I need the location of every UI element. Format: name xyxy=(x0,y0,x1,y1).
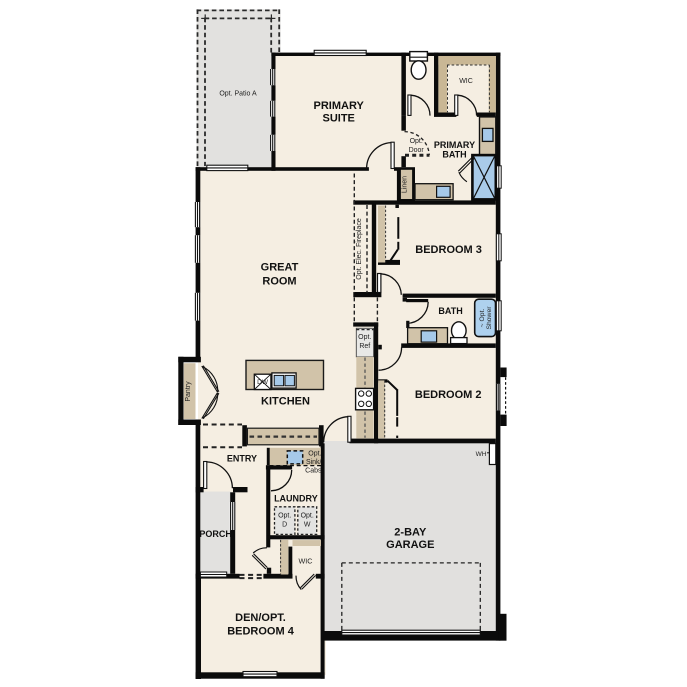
svg-text:2-BAY: 2-BAY xyxy=(394,526,427,538)
svg-text:Sink/: Sink/ xyxy=(306,459,322,466)
svg-text:Opt.: Opt. xyxy=(358,334,371,341)
svg-text:Opt. Patio A: Opt. Patio A xyxy=(219,91,257,98)
svg-text:PRIMARY: PRIMARY xyxy=(434,140,475,150)
svg-text:Opt.: Opt. xyxy=(301,513,314,520)
svg-text:BEDROOM 4: BEDROOM 4 xyxy=(227,626,295,638)
svg-text:GARAGE: GARAGE xyxy=(386,539,434,551)
svg-text:Opt.: Opt. xyxy=(308,451,321,458)
svg-text:Pantry: Pantry xyxy=(185,381,192,402)
svg-text:Door: Door xyxy=(409,147,425,154)
svg-text:WIC: WIC xyxy=(459,78,473,85)
svg-text:WIC: WIC xyxy=(299,557,313,566)
svg-text:BATH: BATH xyxy=(438,306,462,316)
svg-text:PRIMARY: PRIMARY xyxy=(314,100,365,112)
svg-text:PORCH: PORCH xyxy=(199,529,232,539)
svg-text:BATH: BATH xyxy=(442,150,466,160)
svg-text:DW: DW xyxy=(257,379,269,386)
svg-text:Opt. Elec. Fireplace: Opt. Elec. Fireplace xyxy=(356,218,363,280)
svg-text:Cabs: Cabs xyxy=(305,468,322,475)
svg-text:D: D xyxy=(282,522,287,529)
svg-text:LAUNDRY: LAUNDRY xyxy=(274,493,318,503)
svg-text:ENTRY: ENTRY xyxy=(227,453,257,463)
svg-text:Opt.: Opt. xyxy=(278,513,291,520)
svg-text:BEDROOM 2: BEDROOM 2 xyxy=(415,389,482,401)
svg-text:Ref: Ref xyxy=(359,343,370,350)
svg-text:~ Opt.: ~ Opt. xyxy=(479,309,486,328)
svg-text:ROOM: ROOM xyxy=(262,276,296,288)
svg-text:BEDROOM 3: BEDROOM 3 xyxy=(415,244,482,256)
svg-text:WH: WH xyxy=(476,451,487,458)
svg-text:Shower: Shower xyxy=(486,306,493,330)
svg-text:DEN/OPT.: DEN/OPT. xyxy=(235,612,286,624)
svg-text:SUITE: SUITE xyxy=(322,112,354,124)
svg-text:GREAT: GREAT xyxy=(261,262,299,274)
svg-text:Opt.: Opt. xyxy=(410,138,423,145)
svg-text:Linen: Linen xyxy=(402,176,409,193)
svg-text:W: W xyxy=(304,522,311,529)
svg-text:KITCHEN: KITCHEN xyxy=(261,395,310,407)
